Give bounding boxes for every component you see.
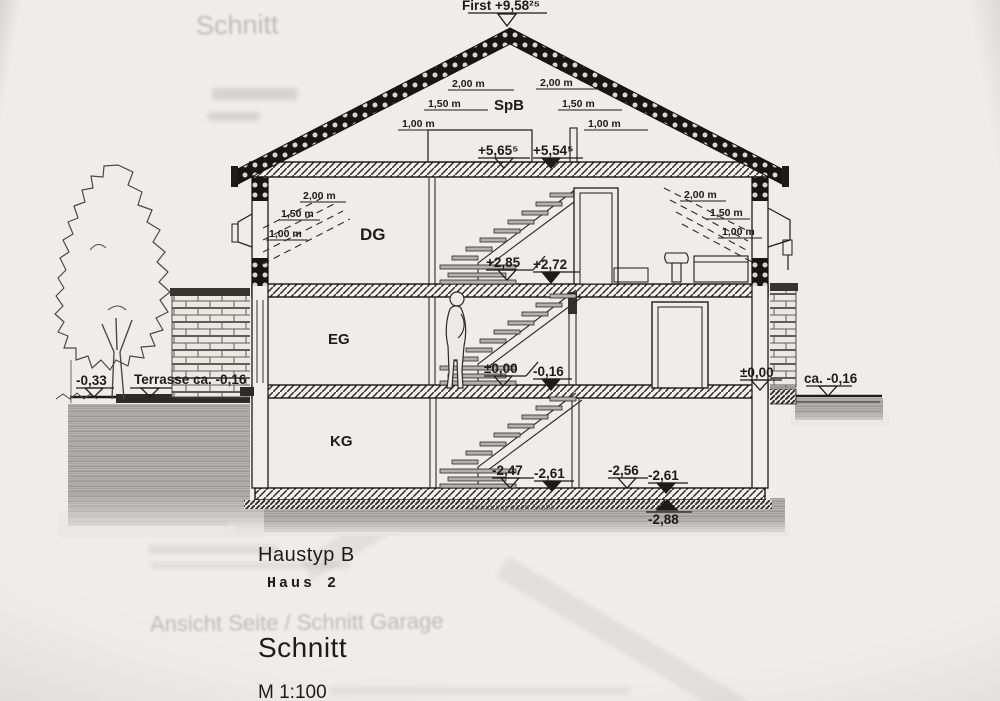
soil-fade xyxy=(228,518,790,536)
level-terrain-left: -0,33 xyxy=(76,373,107,388)
floor-slab-dg xyxy=(252,284,768,297)
level-eg-floor-slab: -0,16 xyxy=(533,364,564,379)
height-label: 1,00 m xyxy=(588,118,621,130)
room-label-dg: DG xyxy=(360,225,386,244)
wall-left xyxy=(252,177,268,488)
fascia-left xyxy=(231,166,238,187)
ceiling-slab-dg xyxy=(250,162,768,177)
level-eg-floor-top: ±0,00 xyxy=(484,361,518,376)
height-label: 2,00 m xyxy=(303,190,336,202)
ridge-level: First +9,58²⁵ xyxy=(462,0,540,13)
height-label: 1,00 m xyxy=(269,228,302,240)
tree-canopy-detail xyxy=(90,244,126,310)
level-dg-ceiling-top: +5,65⁵ xyxy=(478,143,519,158)
level-terrace: Terrasse ca. -0,16 xyxy=(134,372,247,387)
height-label: 2,00 m xyxy=(540,77,573,89)
level-dg-floor-top: +2,85 xyxy=(486,255,521,270)
height-label: 2,00 m xyxy=(452,78,485,90)
wall-right-knee xyxy=(752,258,768,286)
level-terrain-right-top: ±0,00 xyxy=(740,365,774,380)
tree-canopy xyxy=(55,165,170,370)
foundation-note: Gründung nach Statik xyxy=(468,503,556,512)
height-label: 1,50 m xyxy=(562,98,595,110)
room-label-spb: SpB xyxy=(494,97,524,114)
threshold xyxy=(240,387,254,396)
level-dg-floor-slab: +2,72 xyxy=(533,257,567,272)
title-block: Haustyp B Haus 2 xyxy=(258,544,355,592)
house-type-label: Haustyp B xyxy=(258,544,355,567)
door-eg xyxy=(652,302,708,388)
level-kg-floor-top-right: -2,56 xyxy=(608,463,639,478)
gutter-left xyxy=(238,214,252,247)
level-dg-ceiling-slab: +5,54⁵ xyxy=(533,143,574,158)
level-foundation-bottom: -2,88 xyxy=(648,512,679,527)
section-drawing: 2,00 m 1,50 m 1,00 m 2,00 m 1,50 m 1,00 … xyxy=(0,0,1000,701)
drawing-scale: M 1:100 xyxy=(258,682,327,701)
level-kg-floor-top-left: -2,47 xyxy=(492,463,523,478)
wall-right-insulation xyxy=(752,177,768,201)
downpipe-left xyxy=(232,224,238,242)
tree xyxy=(55,165,170,399)
soil-fade xyxy=(790,412,890,426)
wall-right xyxy=(752,177,768,488)
height-label: 1,00 m xyxy=(722,226,755,238)
drawing-title: Schnitt xyxy=(258,632,347,664)
room-label-kg: KG xyxy=(330,433,353,450)
fascia-right xyxy=(782,166,789,187)
level-kg-floor-slab-left: -2,61 xyxy=(534,466,565,481)
height-label: 2,00 m xyxy=(684,189,717,201)
level-kg-floor-slab-right: -2,61 xyxy=(648,468,679,483)
height-label: 1,50 m xyxy=(281,208,314,220)
floor-slab-kg xyxy=(255,488,765,500)
gutter-right xyxy=(768,208,790,247)
height-label: 1,00 m xyxy=(402,118,435,130)
scanned-drawing-page: Schnitt Ansicht Seite / Schnitt Garage xyxy=(0,0,1000,701)
wall-left-insulation xyxy=(252,177,268,201)
brick-wall-left-cap xyxy=(170,288,254,296)
door-dg-leaf xyxy=(580,193,612,284)
room-label-eg: EG xyxy=(328,331,350,348)
height-label: 1,50 m xyxy=(710,207,743,219)
house-number-label: Haus 2 xyxy=(267,575,355,592)
height-label: 1,50 m xyxy=(428,98,461,110)
level-terrain-right: ca. -0,16 xyxy=(804,371,858,386)
